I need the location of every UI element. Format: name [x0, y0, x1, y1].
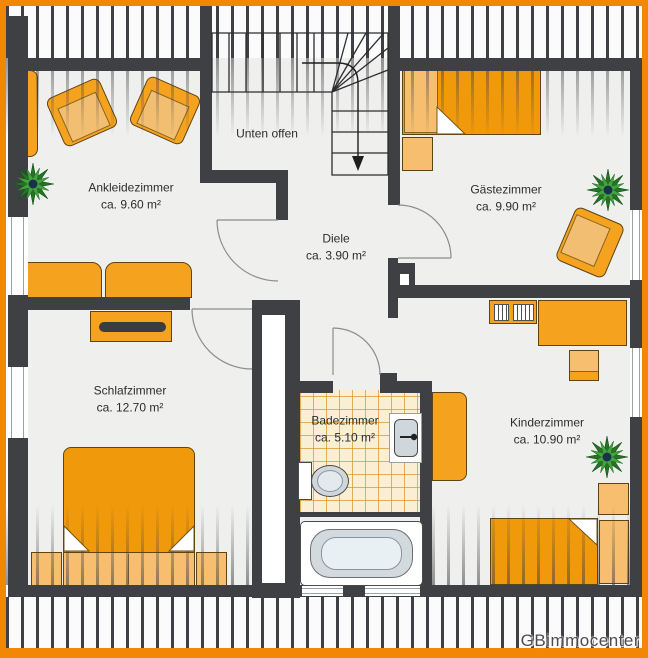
floor-plan: Ankleidezimmer ca. 9.60 m² Gästezimmer c… [0, 0, 648, 658]
wall-notch [400, 274, 409, 285]
books [513, 304, 534, 321]
sink-basin [394, 419, 418, 457]
toilet-tank [298, 462, 312, 500]
sofa-segment [105, 262, 192, 298]
wall-stub [343, 585, 365, 597]
shaft-cavity [262, 315, 285, 583]
room-label-diele: Diele ca. 3.90 m² [306, 231, 366, 266]
room-area: ca. 9.90 m² [470, 199, 541, 216]
sofa-segment [15, 262, 102, 298]
wall-hall-right [388, 258, 398, 318]
wall-stairwell-bottom [200, 170, 288, 183]
room-label-ankleidezimmer: Ankleidezimmer ca. 9.60 m² [88, 180, 173, 215]
toilet-bowl [311, 465, 349, 497]
wall-bedroom-divider [8, 297, 190, 310]
chair-back [570, 371, 598, 380]
toilet-bowl-inner [317, 470, 343, 492]
window [630, 348, 642, 417]
desk-chair [569, 350, 599, 381]
room-label-schlafzimmer: Schlafzimmer ca. 12.70 m² [94, 383, 167, 418]
wall-stub [276, 183, 288, 220]
room-name: Gästezimmer [470, 182, 541, 199]
books [494, 304, 509, 321]
wall-bath-top-left [287, 381, 333, 393]
window [8, 367, 28, 438]
wall-stairwell-right [388, 6, 400, 205]
room-label-kinderzimmer: Kinderzimmer ca. 10.90 m² [510, 415, 584, 450]
room-name: Badezimmer [311, 413, 378, 430]
room-label-gaestezimmer: Gästezimmer ca. 9.90 m² [470, 182, 541, 217]
wall-top-right [390, 58, 642, 71]
wall-stub [380, 373, 397, 381]
room-name: Schlafzimmer [94, 383, 167, 400]
room-name: Kinderzimmer [510, 415, 584, 432]
stairwell-label: Unten offen [236, 125, 298, 142]
frame-border-left [0, 0, 6, 658]
window [630, 210, 642, 280]
dresser-slot [99, 322, 166, 332]
plant-icon [586, 168, 630, 212]
frame-border-right [642, 0, 648, 658]
room-name: Ankleidezimmer [88, 180, 173, 197]
watermark: GBimmocenter [521, 631, 640, 651]
roof-hatch-band-top [6, 6, 642, 58]
wardrobe [432, 392, 467, 481]
wall-stairwell-left [200, 6, 212, 183]
bathtub-basin [321, 537, 402, 570]
nightstand [402, 137, 433, 171]
window [8, 217, 28, 295]
room-area: ca. 12.70 m² [94, 400, 167, 417]
room-label-badezimmer: Badezimmer ca. 5.10 m² [311, 413, 378, 448]
roof-slope-hatch-bottom [6, 505, 252, 585]
wall-tub-edge [300, 512, 420, 517]
room-area: ca. 9.60 m² [88, 197, 173, 214]
room-name: Diele [306, 231, 366, 248]
room-area: ca. 10.90 m² [510, 432, 584, 449]
wall-right [630, 58, 642, 597]
plant-icon [11, 162, 55, 206]
room-area: ca. 3.90 m² [306, 248, 366, 265]
wall-kids-divider [398, 285, 642, 298]
room-area: ca. 5.10 m² [311, 430, 378, 447]
frame-border-top [0, 0, 648, 6]
desk [538, 300, 627, 346]
plant-icon [585, 435, 629, 479]
roof-slope-hatch-bottom [432, 505, 642, 585]
wall-top-left [8, 58, 205, 71]
